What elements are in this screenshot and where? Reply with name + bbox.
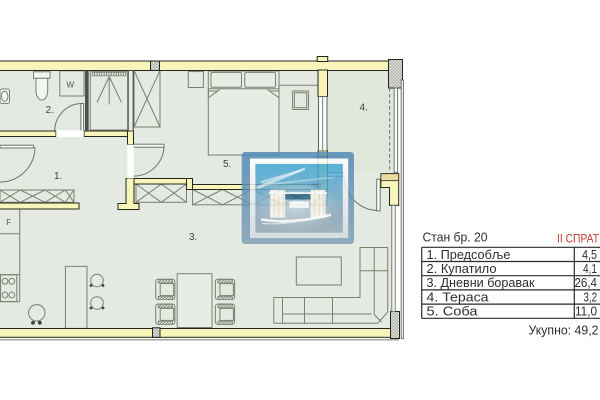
svg-text:4,1: 4,1	[583, 262, 597, 276]
svg-text:4,5: 4,5	[582, 248, 597, 262]
svg-text:5.: 5.	[223, 159, 231, 170]
svg-text:5. Соба: 5. Соба	[427, 305, 478, 319]
svg-text:Укупно: 49,2: Укупно: 49,2	[529, 323, 599, 338]
svg-text:3,2: 3,2	[584, 290, 598, 304]
svg-text:1.: 1.	[54, 171, 62, 182]
svg-text:2.: 2.	[46, 105, 54, 116]
svg-text:Стан бр. 20: Стан бр. 20	[423, 230, 488, 245]
svg-text:4.: 4.	[360, 103, 368, 114]
svg-text:W: W	[67, 81, 75, 90]
svg-text:26,4: 26,4	[575, 276, 598, 290]
svg-text:F: F	[6, 218, 11, 227]
svg-text:II СПРАТ: II СПРАТ	[557, 234, 599, 246]
svg-text:3. Дневни боравак: 3. Дневни боравак	[427, 276, 536, 290]
svg-text:11,0: 11,0	[575, 305, 597, 319]
svg-text:2. Купатило: 2. Купатило	[427, 262, 497, 276]
svg-text:1. Предсобље: 1. Предсобље	[427, 248, 511, 262]
svg-text:3.: 3.	[189, 232, 197, 243]
svg-text:4. Тераса: 4. Тераса	[427, 290, 489, 304]
